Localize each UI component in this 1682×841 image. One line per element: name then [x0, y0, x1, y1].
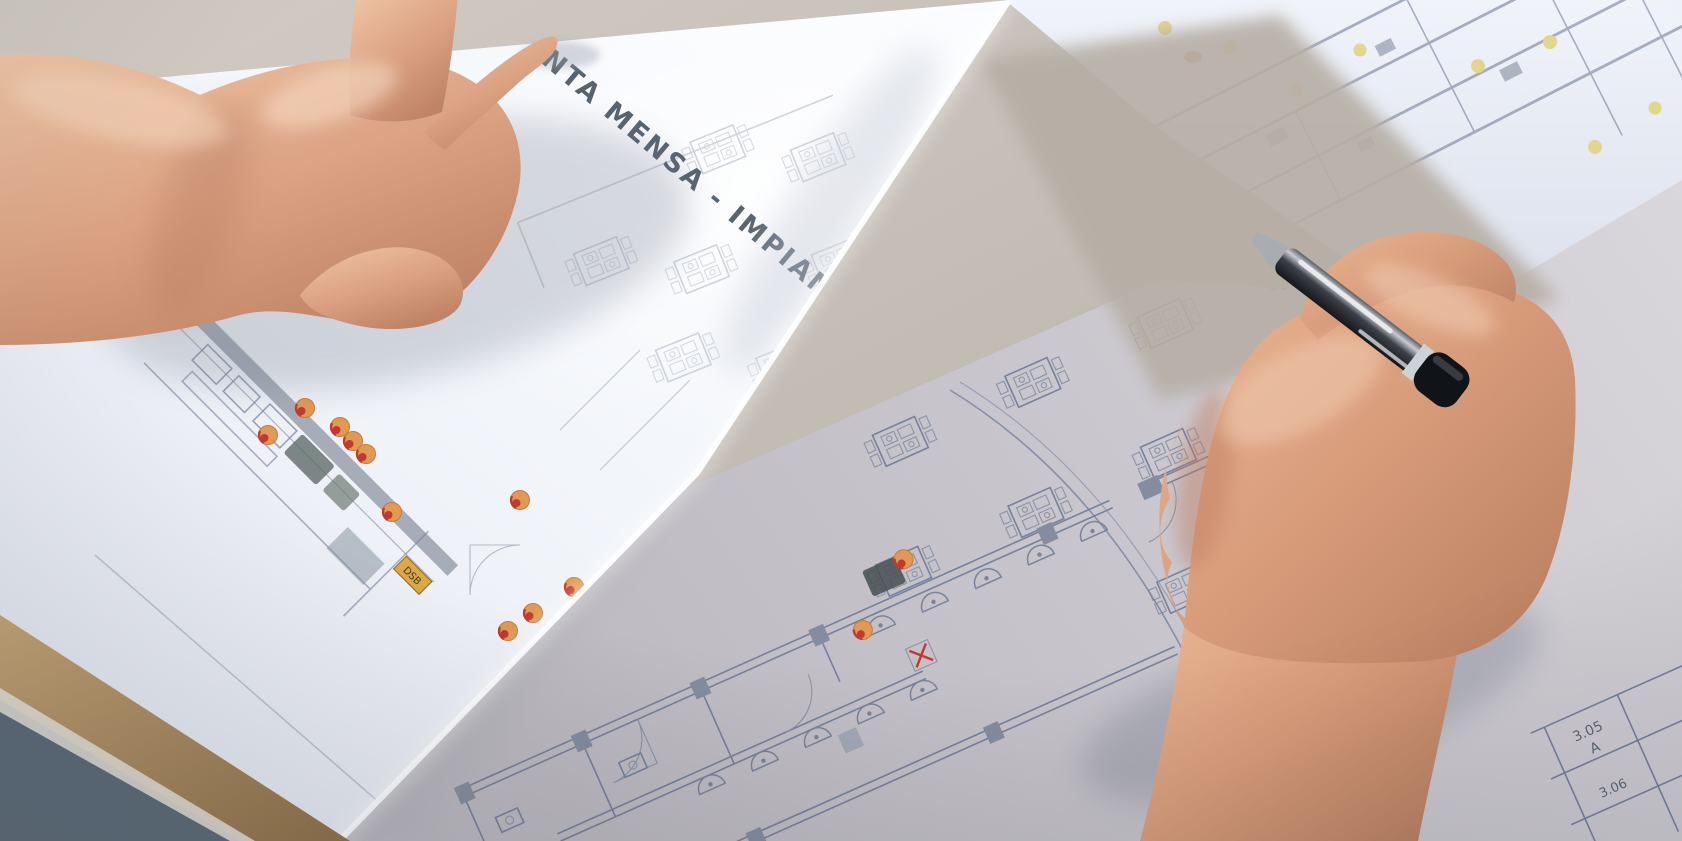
vignette	[0, 0, 1682, 841]
photo-canvas: 3.05 A 3.06	[0, 0, 1682, 841]
blueprint-photo: 3.05 A 3.06	[0, 0, 1682, 841]
